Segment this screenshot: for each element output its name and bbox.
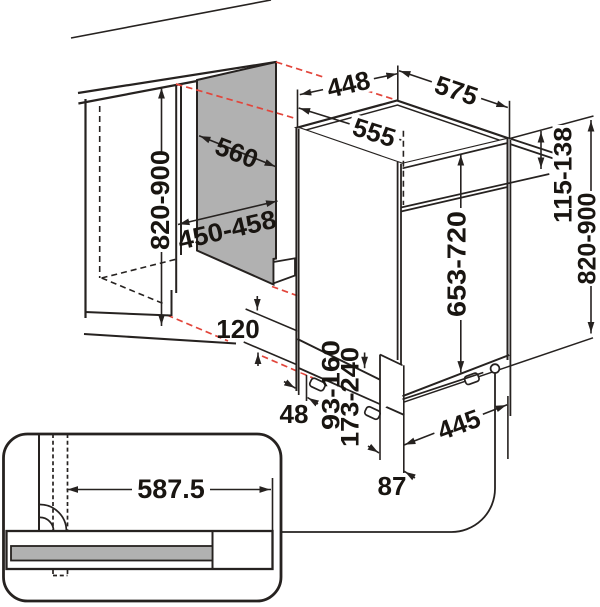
svg-text:48: 48 (280, 399, 309, 429)
svg-text:120: 120 (216, 314, 259, 344)
svg-text:587.5: 587.5 (137, 474, 205, 504)
svg-text:87: 87 (378, 471, 407, 501)
svg-text:653-720: 653-720 (442, 211, 472, 317)
svg-text:820-900: 820-900 (147, 150, 175, 250)
svg-text:173-240: 173-240 (337, 347, 365, 447)
svg-text:820-900: 820-900 (574, 193, 600, 285)
